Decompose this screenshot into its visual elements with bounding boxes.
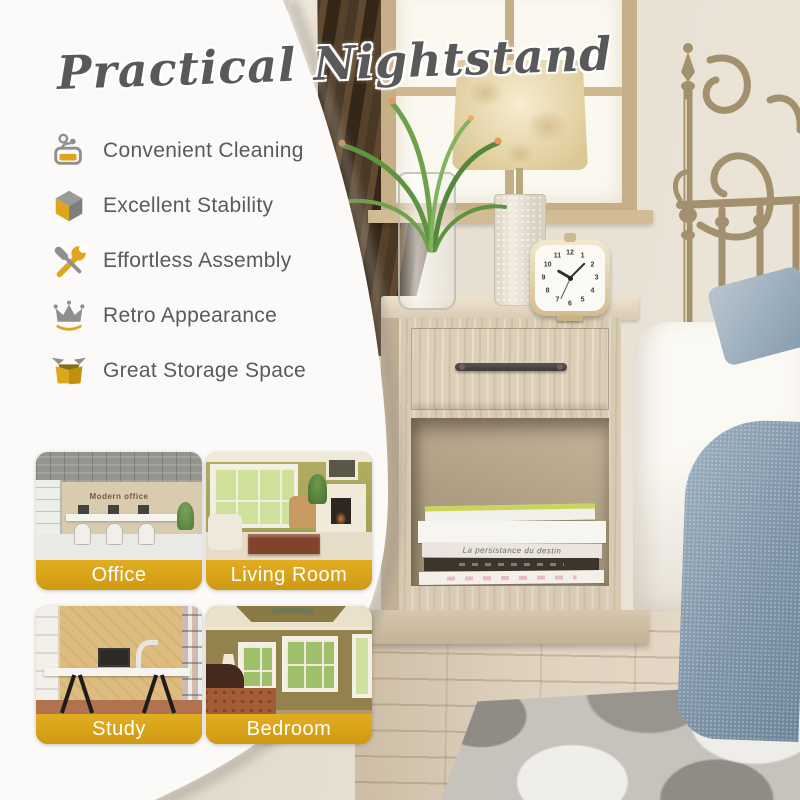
clock-numeral: 3: [595, 275, 599, 282]
living-room-sofa: [208, 514, 242, 550]
room-label-office: Office: [36, 560, 202, 590]
book-spine-text: La persistance du destin: [422, 542, 602, 559]
clock-center-pin: [568, 276, 573, 281]
office-chair: [138, 523, 155, 545]
nightstand-side: [381, 318, 399, 618]
clock-numeral: 11: [554, 252, 561, 259]
clock-numeral: 2: [590, 262, 594, 269]
room-label-study: Study: [36, 714, 202, 744]
feature-label: Retro Appearance: [103, 304, 277, 328]
crown-icon: [50, 297, 88, 335]
nightstand-base: [371, 610, 649, 644]
alarm-clock: 12 1 2 3 4 5 6 7 8 9 10 11: [530, 240, 610, 316]
clock-second-hand: [560, 278, 571, 299]
book: [424, 558, 599, 571]
book: [419, 570, 604, 585]
office-chair: [106, 523, 123, 545]
study-laptop: [98, 648, 130, 667]
room-card-bedroom: Bedroom: [206, 606, 372, 744]
study-desk: [44, 668, 190, 676]
clock-knob: [564, 233, 576, 242]
clock-face: 12 1 2 3 4 5 6 7 8 9 10 11: [535, 245, 605, 311]
room-label-living-room: Living Room: [206, 560, 372, 590]
bedroom-door: [352, 634, 372, 698]
clock-numeral: 6: [568, 300, 572, 307]
clock-numeral: 5: [581, 297, 585, 304]
office-chair: [74, 523, 91, 545]
feature-item: Convenient Cleaning: [50, 132, 306, 170]
book: [425, 504, 595, 523]
bedroom-window: [282, 636, 338, 692]
product-infographic: La persistance du destin: [0, 0, 800, 800]
clock-numeral: 1: [581, 252, 585, 259]
lamp-stem: [516, 168, 523, 196]
bed-blanket: [676, 418, 800, 742]
clock-numeral: 12: [566, 249, 574, 256]
clock-numeral: 7: [555, 297, 559, 304]
book: [418, 521, 606, 543]
office-monitor: [78, 505, 89, 514]
office-monitor: [108, 505, 119, 514]
office-desk: [66, 514, 178, 521]
room-thumbnails: Modern office Office: [36, 452, 372, 744]
office-plant: [177, 502, 194, 530]
drawer-handle: [455, 363, 567, 371]
ceiling-fan: [272, 608, 314, 614]
office-monitor: [138, 505, 149, 514]
firebox: [331, 498, 351, 524]
clock-numeral: 10: [544, 262, 552, 269]
room-card-living-room: Living Room: [206, 452, 372, 590]
cube-icon: [50, 187, 88, 225]
office-window: [36, 480, 62, 536]
coffee-table: [248, 534, 320, 554]
feature-label: Convenient Cleaning: [103, 139, 304, 163]
feature-item: Excellent Stability: [50, 187, 306, 225]
open-box-icon: [50, 352, 88, 390]
feature-label: Excellent Stability: [103, 194, 273, 218]
feature-item: Retro Appearance: [50, 297, 306, 335]
feature-list: Convenient Cleaning Excellent Stability …: [50, 132, 306, 407]
green-plant: [330, 85, 510, 255]
feature-item: Great Storage Space: [50, 352, 306, 390]
cleaning-icon: [50, 132, 88, 170]
crown-molding: [206, 627, 372, 630]
clock-numeral: 8: [546, 287, 550, 294]
feature-label: Great Storage Space: [103, 359, 306, 383]
living-room-mirror: [326, 457, 358, 480]
clock-numeral: 9: [541, 275, 545, 282]
clock-numeral: 4: [590, 287, 594, 294]
clock-foot: [557, 315, 583, 321]
feature-label: Effortless Assembly: [103, 249, 292, 273]
living-room-plant: [308, 474, 327, 504]
study-desk-lamp: [136, 640, 158, 668]
room-label-bedroom: Bedroom: [206, 714, 372, 744]
room-card-office: Modern office Office: [36, 452, 202, 590]
office-ceiling: [36, 452, 202, 482]
room-card-study: Study: [36, 606, 202, 744]
feature-item: Effortless Assembly: [50, 242, 306, 280]
tools-icon: [50, 242, 88, 280]
